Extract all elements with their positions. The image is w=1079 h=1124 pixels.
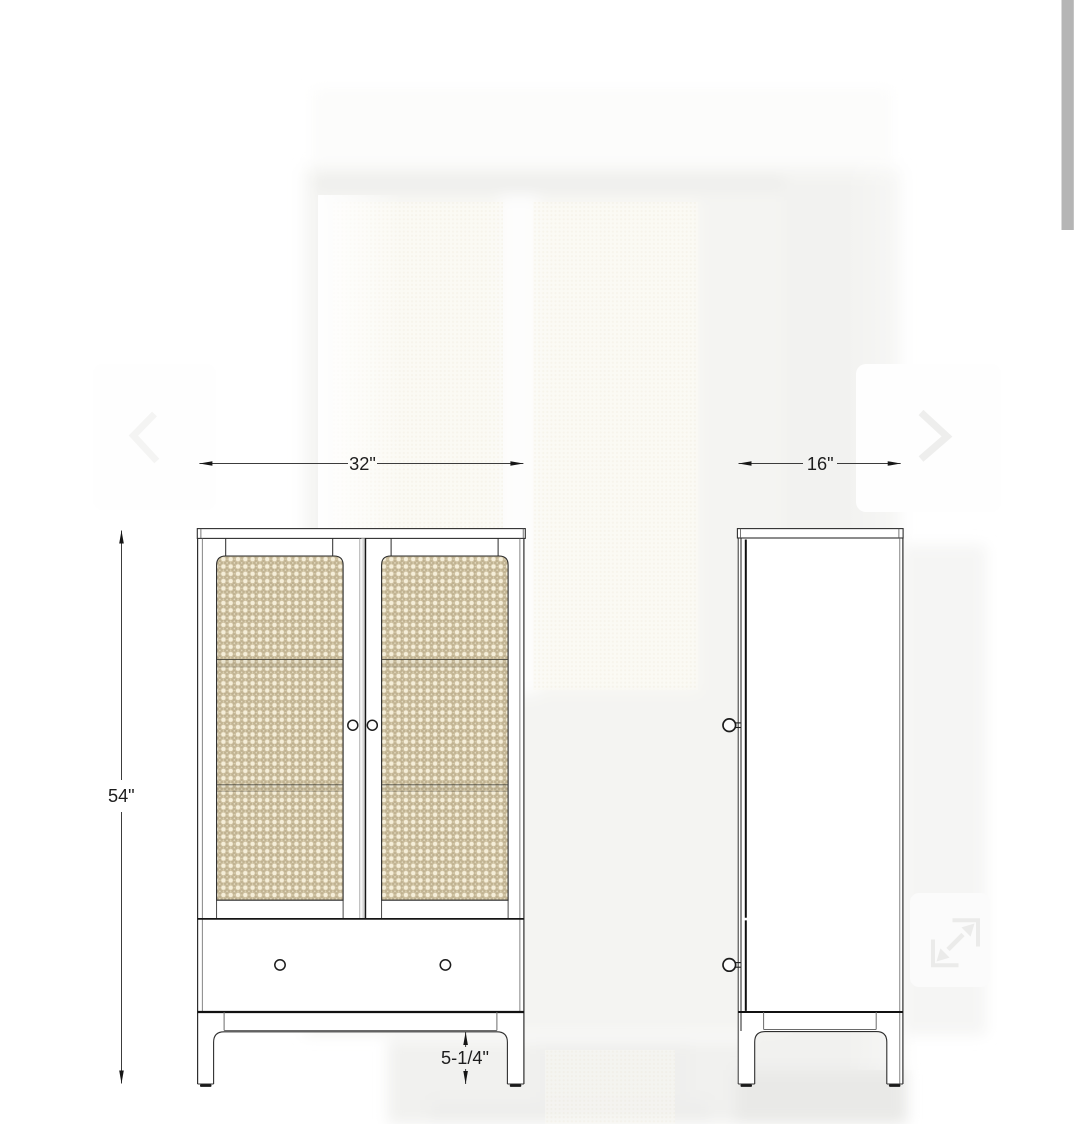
svg-text:32": 32" [349,454,376,474]
svg-text:5-1/4": 5-1/4" [441,1048,489,1068]
svg-text:16": 16" [807,454,834,474]
svg-text:54": 54" [108,786,135,806]
